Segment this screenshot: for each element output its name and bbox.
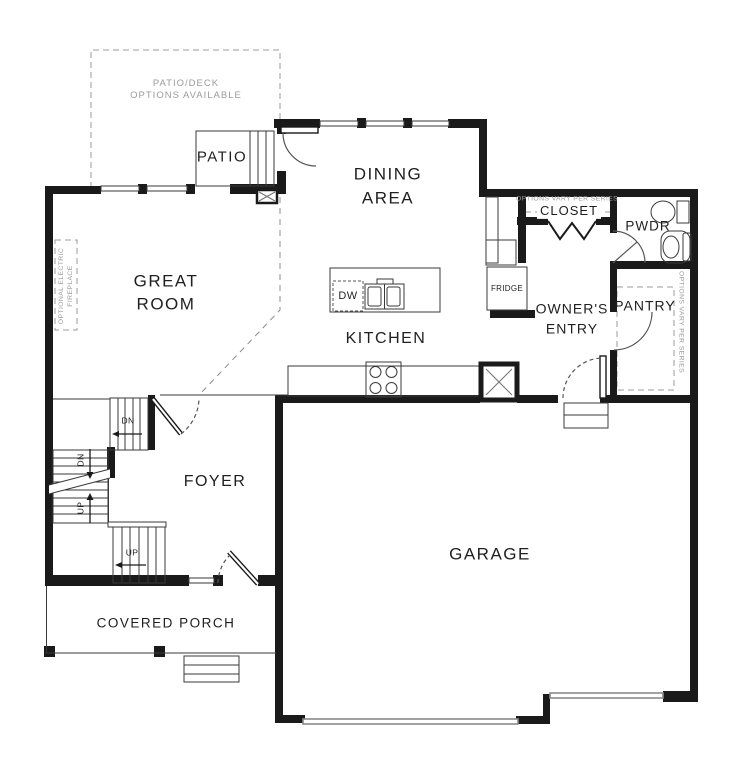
porch-post — [44, 646, 55, 657]
room-label-dining-2: AREA — [362, 187, 414, 208]
room-label-greatroom-2: ROOM — [137, 293, 196, 314]
room-label-owners-entry-1: OWNER'S — [536, 300, 609, 318]
room-label-greatroom-1: GREAT — [134, 270, 199, 291]
room-label-owners-entry-2: ENTRY — [546, 320, 598, 338]
window-greatroom-1 — [101, 186, 139, 191]
floor-plan-canvas — [0, 0, 748, 768]
window-dining-2 — [366, 121, 404, 126]
room-label-pwdr: PWDR — [625, 219, 670, 236]
patio-deck-note: PATIO/DECK OPTIONS AVAILABLE — [130, 78, 242, 102]
stair-label-up-lower: UP — [126, 548, 138, 559]
room-label-foyer: FOYER — [184, 472, 247, 492]
faucet-icon — [377, 279, 393, 284]
bifold-doors-closet — [548, 221, 596, 239]
wall-garage-bottom-right — [663, 691, 698, 702]
wall-dining-west-lower — [277, 171, 286, 194]
window-dining-3 — [412, 121, 449, 126]
cabinet — [486, 240, 516, 265]
door-leaf-pwdr — [613, 242, 637, 263]
door-leaf-patio — [281, 127, 318, 133]
room-label-covered-porch: COVERED PORCH — [97, 616, 236, 633]
patio-deck-option-outline — [91, 50, 280, 188]
room-label-patio: PATIO — [197, 149, 247, 168]
garage-door-2 — [550, 693, 663, 698]
stair-label-dn-upper: DN — [122, 416, 135, 427]
stair-landing-edge — [108, 522, 166, 527]
porch-post — [154, 646, 165, 657]
stairs — [49, 398, 166, 583]
sink-backsplash — [677, 201, 689, 223]
door-arc-patio — [283, 133, 316, 166]
wall-garage-bottom-jog — [543, 694, 550, 724]
counter-strip — [486, 197, 498, 263]
garage-door-1 — [303, 719, 518, 724]
wall-garage-west — [275, 395, 283, 723]
patio-steps — [250, 131, 274, 186]
optional-fireplace-note: OPTIONAL ELECTRIC FIREPLACE — [57, 248, 75, 324]
wall-west — [45, 186, 53, 584]
great-room-boundary-dashed — [200, 197, 280, 394]
wall-garage-bottom-left — [275, 715, 305, 723]
wall-greatroom-top — [45, 186, 101, 194]
chase-xbox — [481, 364, 517, 400]
window-dining-1 — [320, 121, 358, 126]
door-arc-pantry — [614, 312, 652, 350]
options-note-pantry: OPTIONS VARY PER SERIES — [677, 271, 686, 373]
stair-label-dn-mid: DN — [76, 454, 87, 467]
room-label-kitchen: KITCHEN — [346, 329, 427, 349]
room-label-pantry: PANTRY — [614, 297, 676, 315]
wall-foyer-front-right — [258, 575, 283, 586]
fixture-label-dishwasher: DW — [338, 290, 357, 304]
window-foyer-sidelite — [189, 578, 214, 583]
vent-xbox — [257, 190, 277, 203]
door-arc-garage-entry — [563, 358, 603, 398]
stair-label-up-mid: UP — [76, 502, 87, 514]
wall-fridge-stub — [490, 310, 535, 318]
floor-plan: PATIO/DECK OPTIONS AVAILABLE PATIO DININ… — [0, 0, 748, 768]
porch-steps — [184, 656, 239, 682]
fixture-label-fridge: FRIDGE — [491, 284, 523, 294]
door-arc-stair — [181, 398, 199, 434]
kitchen-counter — [288, 362, 480, 397]
wall-dining-east — [479, 119, 487, 197]
wall-garage-top-3 — [600, 395, 698, 403]
window-mullion — [180, 575, 189, 586]
toilet-icon — [661, 231, 690, 263]
wall-garage-top-2 — [517, 395, 558, 403]
door-leaf-garage-entry — [600, 356, 606, 398]
covered-porch-outline — [45, 586, 276, 682]
window-greatroom-2 — [147, 186, 187, 191]
entry-steps — [564, 403, 608, 428]
room-label-dining-1: DINING — [354, 163, 423, 184]
wall-kitchen-closet-divider — [518, 194, 526, 263]
room-label-closet: CLOSET — [537, 203, 601, 219]
room-label-garage: GARAGE — [449, 543, 531, 564]
